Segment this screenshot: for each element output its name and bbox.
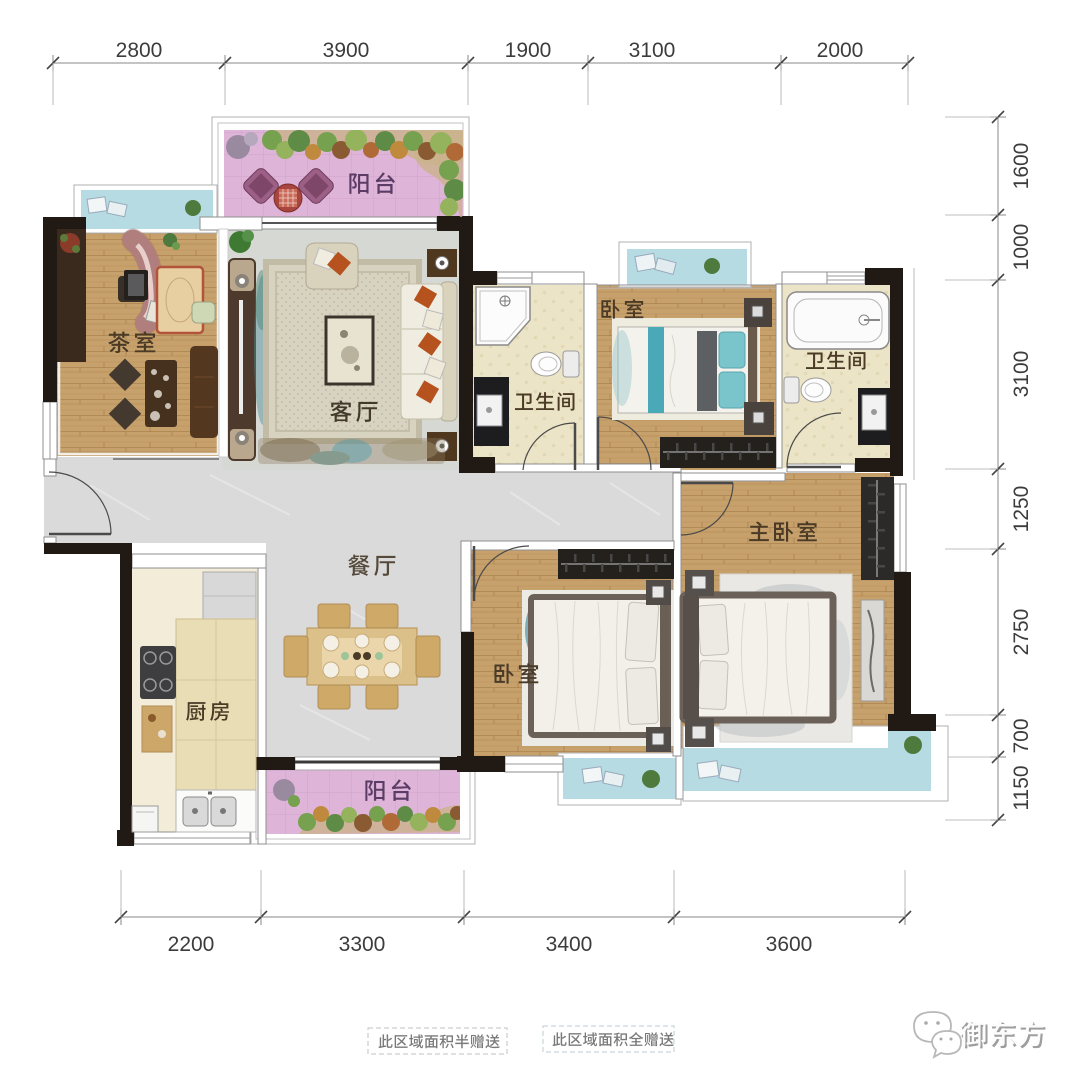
svg-text:1250: 1250 [1010,486,1033,533]
svg-text:1900: 1900 [505,39,552,62]
svg-text:2800: 2800 [116,39,163,62]
svg-text:1150: 1150 [1010,765,1033,810]
svg-text:3100: 3100 [1010,351,1033,398]
svg-text:1000: 1000 [1010,224,1033,271]
svg-text:2000: 2000 [817,39,864,62]
svg-text:700: 700 [1010,718,1033,753]
svg-text:2750: 2750 [1010,609,1033,656]
svg-text:1600: 1600 [1010,143,1033,190]
svg-text:3100: 3100 [629,39,676,62]
svg-text:3900: 3900 [323,39,370,62]
svg-text:3400: 3400 [546,933,593,956]
svg-text:3600: 3600 [766,933,813,956]
svg-text:2200: 2200 [168,933,215,956]
svg-text:3300: 3300 [339,933,386,956]
